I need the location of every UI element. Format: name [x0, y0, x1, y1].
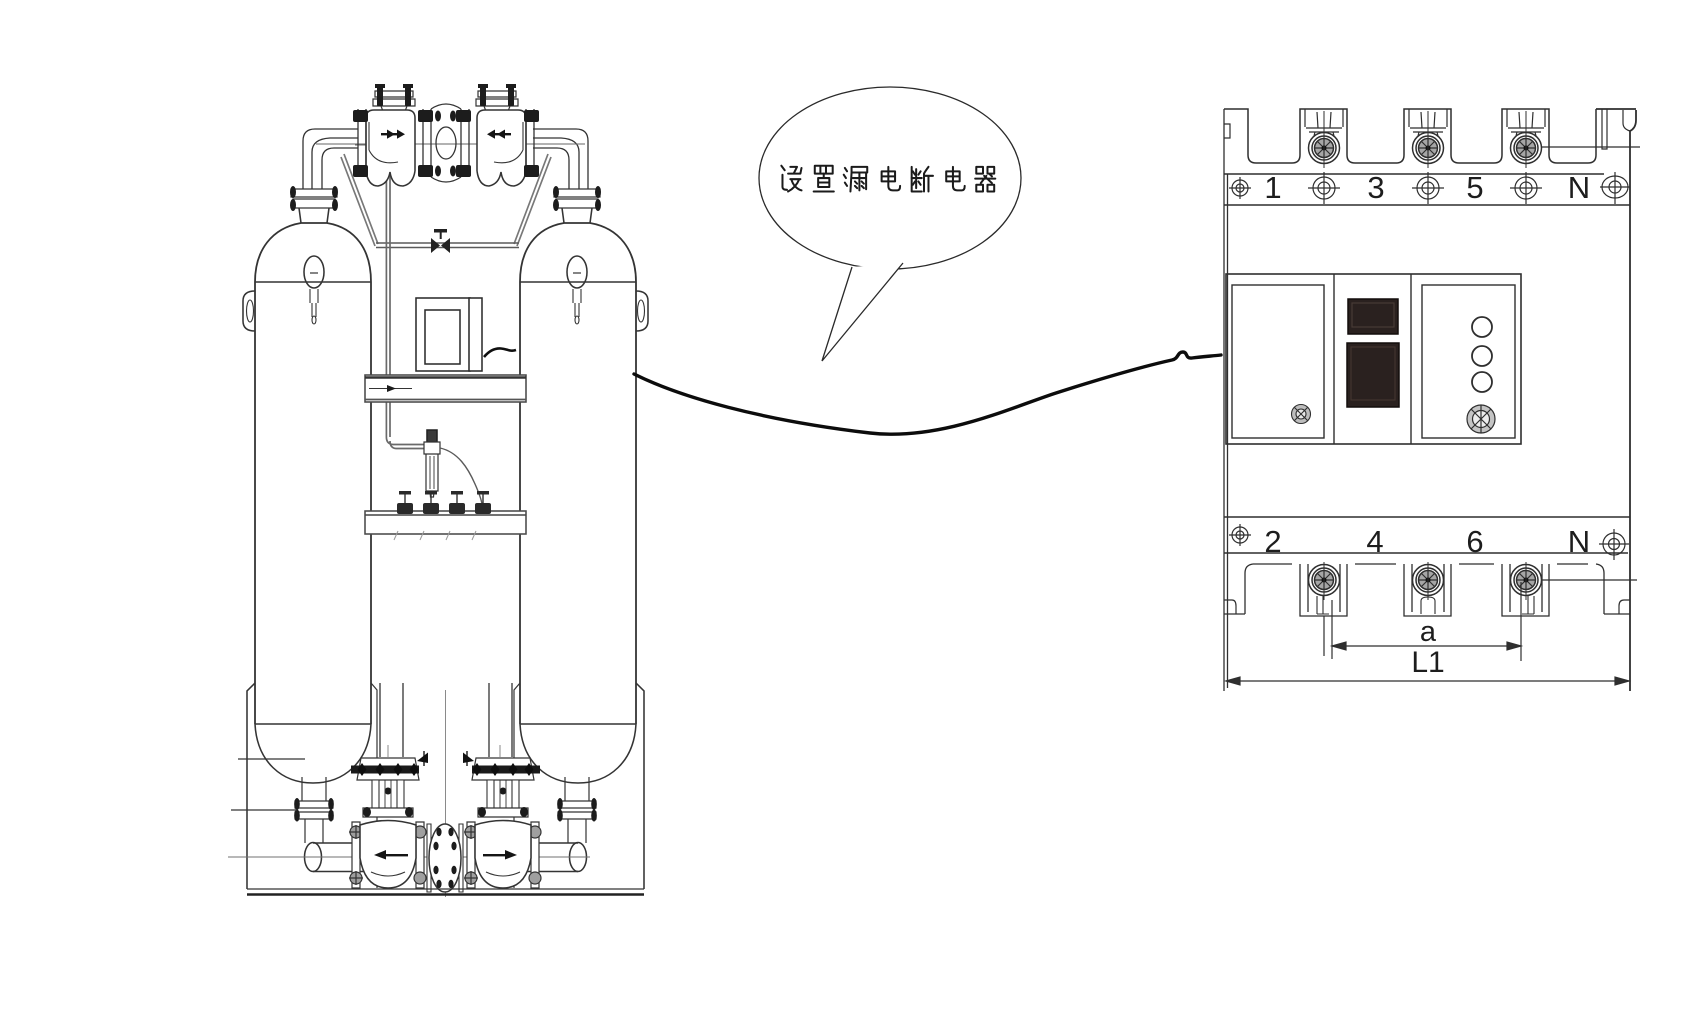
svg-text:N: N: [1568, 524, 1590, 559]
svg-text:2: 2: [1264, 524, 1281, 559]
svg-text:3: 3: [1367, 170, 1384, 205]
svg-text:L1: L1: [1411, 646, 1444, 679]
svg-text:4: 4: [1366, 524, 1383, 559]
svg-text:a: a: [1420, 616, 1437, 648]
svg-text:5: 5: [1466, 170, 1483, 205]
svg-text:N: N: [1568, 170, 1590, 205]
svg-text:1: 1: [1264, 170, 1281, 205]
svg-text:6: 6: [1466, 524, 1483, 559]
